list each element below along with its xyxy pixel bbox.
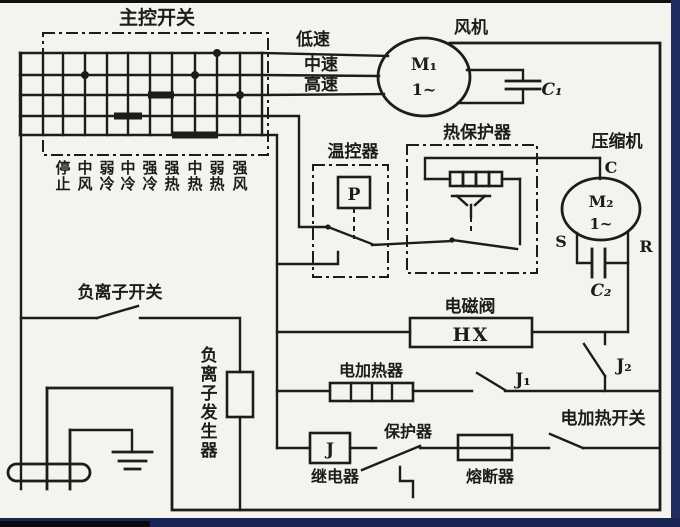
ion-switch-label: 负离子开关 — [78, 282, 163, 303]
vertical-label-char: 风 — [77, 175, 92, 193]
main-switch-title: 主控开关 — [119, 6, 195, 29]
vertical-label-char: 离 — [201, 364, 218, 385]
schematic-page: 主控开关 停止中风弱冷中冷强冷强热中热弱热强风 低速 中速 高速 M₁ 1~ 风… — [0, 0, 680, 527]
vertical-label-char: 热 — [187, 175, 202, 193]
vertical-label-char: 器 — [200, 441, 219, 461]
compressor-capacitor-label: C₂ — [591, 281, 612, 301]
compressor-motor-id: M₂ — [589, 192, 614, 211]
terminal-c-label: C — [605, 158, 618, 177]
compressor-label: 压缩机 — [592, 131, 643, 152]
vertical-label-char: 止 — [55, 175, 70, 193]
thermal-protector-label: 热保护器 — [443, 122, 512, 143]
vertical-label-char: 冷 — [120, 175, 135, 193]
fan-label: 风机 — [454, 17, 488, 38]
vertical-label-char: 冷 — [142, 175, 157, 193]
terminal-r-label: R — [639, 237, 653, 256]
vertical-label-char: 子 — [201, 384, 218, 404]
vertical-label-char: 发 — [200, 402, 219, 423]
thermostat-sensor-label: P — [348, 185, 361, 205]
fan-motor-id: M₁ — [411, 55, 437, 75]
j1-label: J₁ — [513, 370, 531, 390]
speed-low-label: 低速 — [295, 29, 330, 50]
fan-capacitor-label: C₁ — [542, 80, 563, 100]
vertical-label-char: 热 — [209, 175, 224, 193]
speed-high-label: 高速 — [304, 74, 338, 95]
j2-label: J₂ — [614, 356, 632, 376]
fuse-label: 熔断器 — [466, 467, 515, 486]
vertical-label-char: 热 — [164, 175, 179, 193]
vertical-label-char: 生 — [201, 421, 218, 442]
terminal-s-label: S — [555, 232, 567, 251]
compressor-motor-phase: 1~ — [589, 215, 612, 233]
speed-mid-label: 中速 — [304, 54, 338, 75]
heater-label: 电加热器 — [339, 361, 404, 380]
relay-label: 继电器 — [311, 467, 360, 486]
solenoid-label: 电磁阀 — [445, 296, 496, 317]
thermostat-label: 温控器 — [328, 141, 380, 162]
relay-code: J — [324, 440, 334, 460]
heat-switch-label: 电加热开关 — [561, 408, 646, 429]
protector-label: 保护器 — [383, 422, 433, 441]
vertical-label-char: 冷 — [99, 175, 114, 193]
switch-position-labels: 停止中风弱冷中冷强冷强热中热弱热强风 — [55, 159, 247, 193]
ion-generator-label: 负离子发生器 — [200, 345, 219, 461]
vertical-label-char: 负 — [201, 345, 218, 366]
vertical-label-char: 风 — [232, 175, 247, 193]
solenoid-code: HX — [453, 324, 490, 346]
fan-motor-phase: 1~ — [412, 80, 437, 99]
